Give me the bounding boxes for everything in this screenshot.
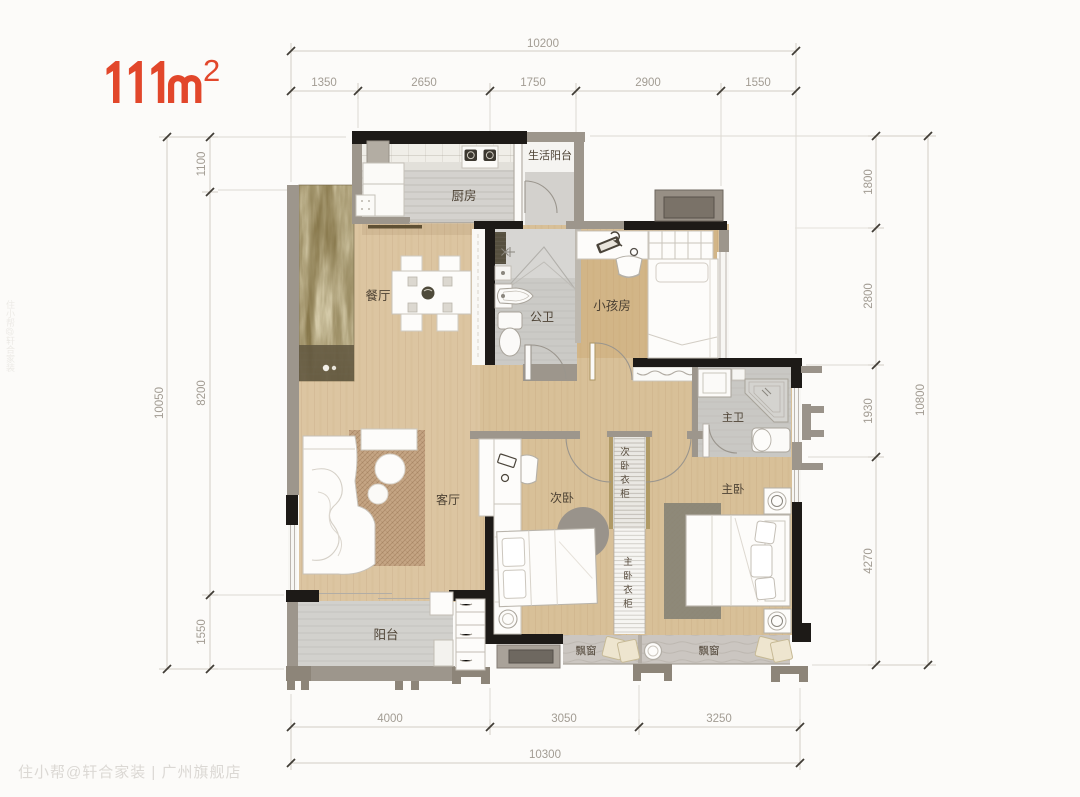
svg-text:次: 次 [620,446,630,458]
svg-text:住小帮@轩合家装 | 广州旗舰店: 住小帮@轩合家装 | 广州旗舰店 [18,764,241,781]
svg-text:4270: 4270 [863,548,875,574]
svg-text:1100: 1100 [196,152,208,177]
svg-text:1750: 1750 [520,77,546,89]
svg-text:客厅: 客厅 [436,492,460,507]
svg-text:1800: 1800 [863,169,875,195]
svg-text:厨房: 厨房 [451,188,476,203]
svg-text:2900: 2900 [635,77,661,89]
svg-text:4000: 4000 [377,713,403,725]
svg-text:生活阳台: 生活阳台 [528,148,572,162]
svg-text:10050: 10050 [154,387,166,419]
svg-text:卧: 卧 [620,460,630,472]
svg-text:1930: 1930 [863,398,875,424]
svg-text:8200: 8200 [196,380,208,406]
svg-text:2650: 2650 [411,77,437,89]
svg-text:卧: 卧 [623,570,633,582]
svg-text:1550: 1550 [196,619,208,645]
svg-text:3250: 3250 [706,713,732,725]
svg-text:1550: 1550 [745,77,771,89]
svg-text:2: 2 [203,53,220,88]
svg-text:小孩房: 小孩房 [593,298,631,313]
svg-text:飘窗: 飘窗 [576,644,597,657]
svg-text:主: 主 [623,556,633,568]
svg-text:3050: 3050 [551,713,577,725]
svg-text:10200: 10200 [527,38,559,50]
svg-text:柜: 柜 [623,598,633,610]
svg-text:10800: 10800 [915,384,927,416]
svg-text:公卫: 公卫 [530,310,554,324]
svg-text:衣: 衣 [620,474,630,486]
svg-text:1350: 1350 [311,77,337,89]
svg-text:主卫: 主卫 [722,411,744,424]
svg-text:主卧: 主卧 [722,483,745,496]
svg-text:2800: 2800 [863,283,875,309]
svg-text:柜: 柜 [620,488,630,500]
svg-text:阳台: 阳台 [373,627,398,642]
svg-text:次卧: 次卧 [550,491,574,505]
svg-text:餐厅: 餐厅 [365,288,390,303]
svg-text:10300: 10300 [529,749,561,761]
svg-text:飘窗: 飘窗 [699,644,720,657]
svg-text:住小帮@轩合家装: 住小帮@轩合家装 [5,299,15,373]
svg-text:衣: 衣 [623,584,633,596]
